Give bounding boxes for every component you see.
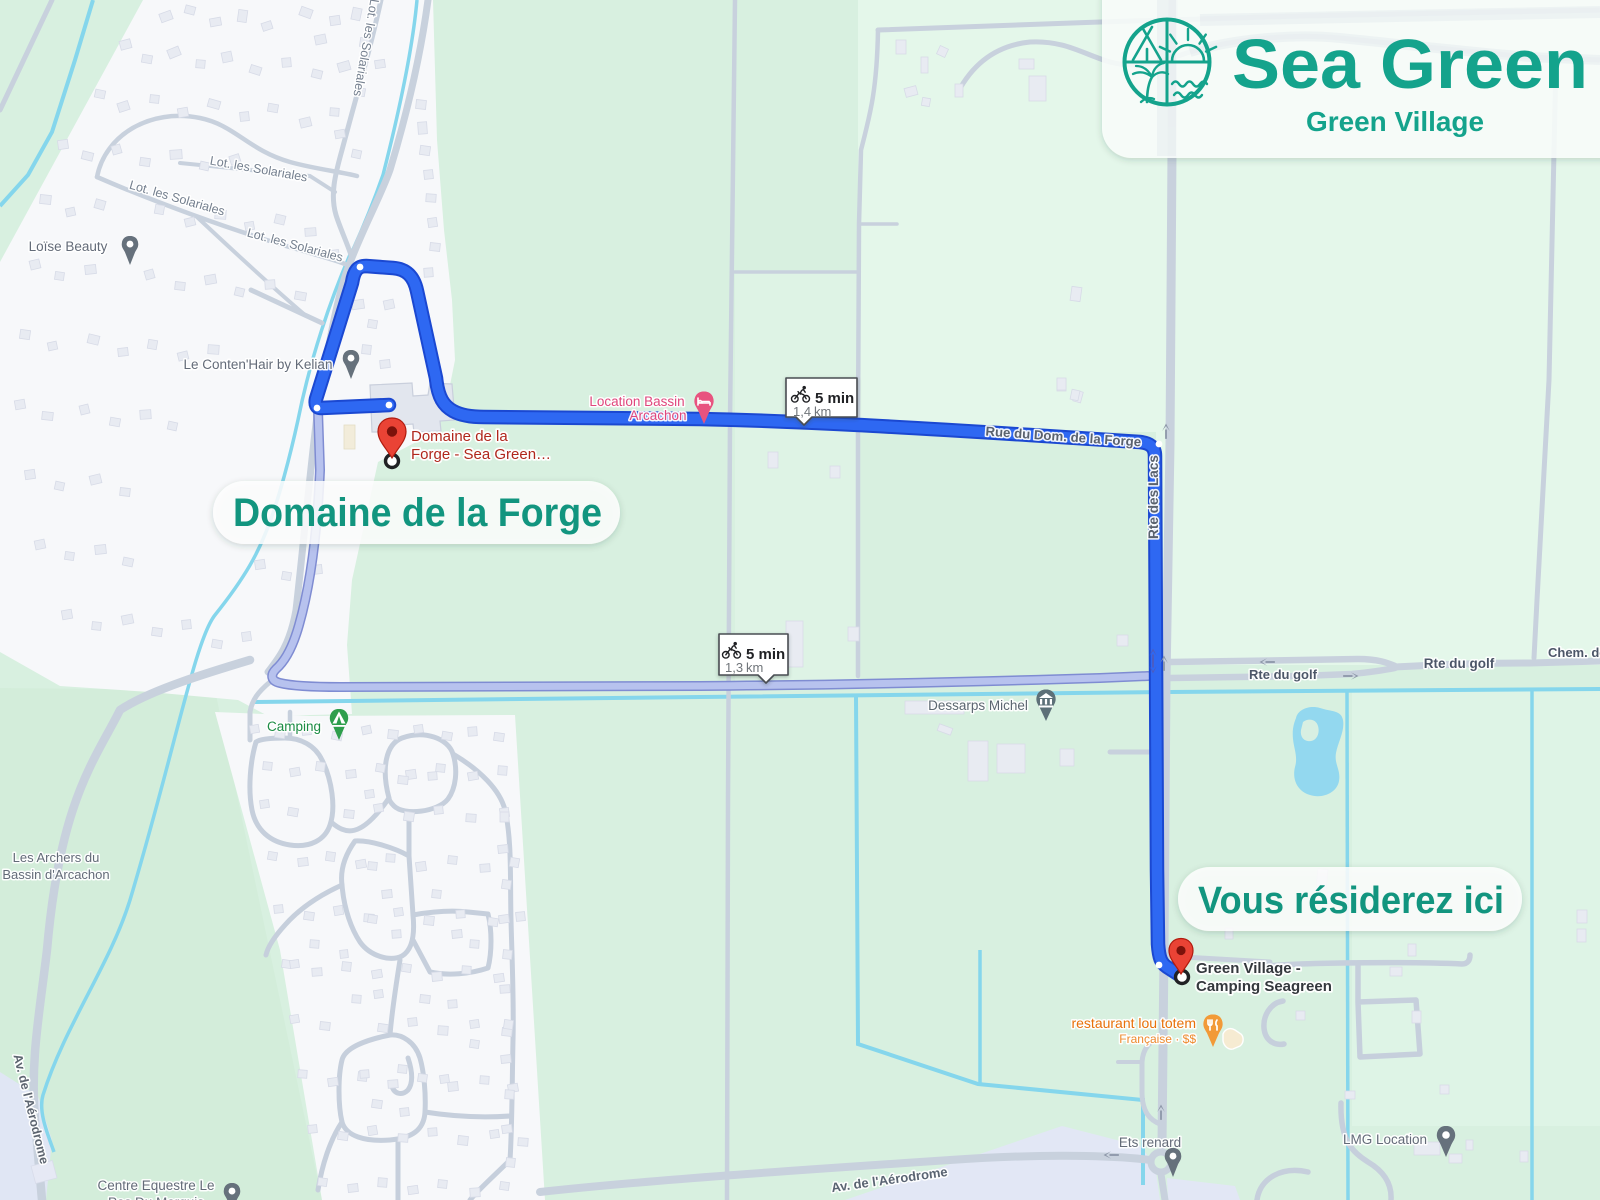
svg-text:Le Conten'Hair by Kelian: Le Conten'Hair by Kelian — [184, 357, 333, 372]
svg-text:km: km — [814, 404, 831, 419]
svg-text:LMG Location: LMG Location — [1343, 1132, 1427, 1147]
svg-text:Arcachon: Arcachon — [629, 408, 686, 423]
svg-text:Rte des Lacs: Rte des Lacs — [1146, 455, 1161, 539]
svg-text:Green Village -: Green Village - — [1196, 960, 1301, 977]
svg-text:Ets renard: Ets renard — [1119, 1135, 1181, 1150]
svg-text:Française · $$: Française · $$ — [1119, 1032, 1196, 1046]
svg-text:Bassin d'Arcachon: Bassin d'Arcachon — [2, 867, 109, 882]
svg-text:Sea Green: Sea Green — [1232, 25, 1588, 103]
svg-text:km: km — [746, 660, 763, 675]
svg-text:Forge - Sea Green…: Forge - Sea Green… — [411, 446, 551, 463]
svg-text:Vous résiderez ici: Vous résiderez ici — [1198, 880, 1504, 922]
svg-text:1,4: 1,4 — [793, 404, 811, 419]
svg-text:Camping Seagreen: Camping Seagreen — [1196, 978, 1332, 995]
svg-text:1,3: 1,3 — [725, 660, 743, 675]
svg-text:Rte du golf: Rte du golf — [1249, 667, 1318, 682]
svg-text:Camping: Camping — [267, 719, 321, 734]
svg-text:Pas Du Marquis: Pas Du Marquis — [108, 1195, 204, 1200]
svg-text:Rte du golf: Rte du golf — [1424, 656, 1495, 671]
svg-text:Les Archers du: Les Archers du — [13, 850, 100, 865]
svg-text:Green Village: Green Village — [1306, 106, 1484, 137]
svg-text:restaurant lou totem: restaurant lou totem — [1071, 1015, 1196, 1031]
svg-text:Location Bassin: Location Bassin — [589, 394, 684, 409]
svg-text:Domaine de la Forge: Domaine de la Forge — [233, 491, 602, 535]
svg-text:Dessarps Michel: Dessarps Michel — [928, 698, 1028, 713]
svg-text:Loïse Beauty: Loïse Beauty — [29, 239, 108, 254]
svg-text:Centre Equestre Le: Centre Equestre Le — [97, 1178, 214, 1193]
svg-text:Domaine de la: Domaine de la — [411, 428, 508, 445]
svg-text:Chem. de: Chem. de — [1548, 645, 1600, 660]
